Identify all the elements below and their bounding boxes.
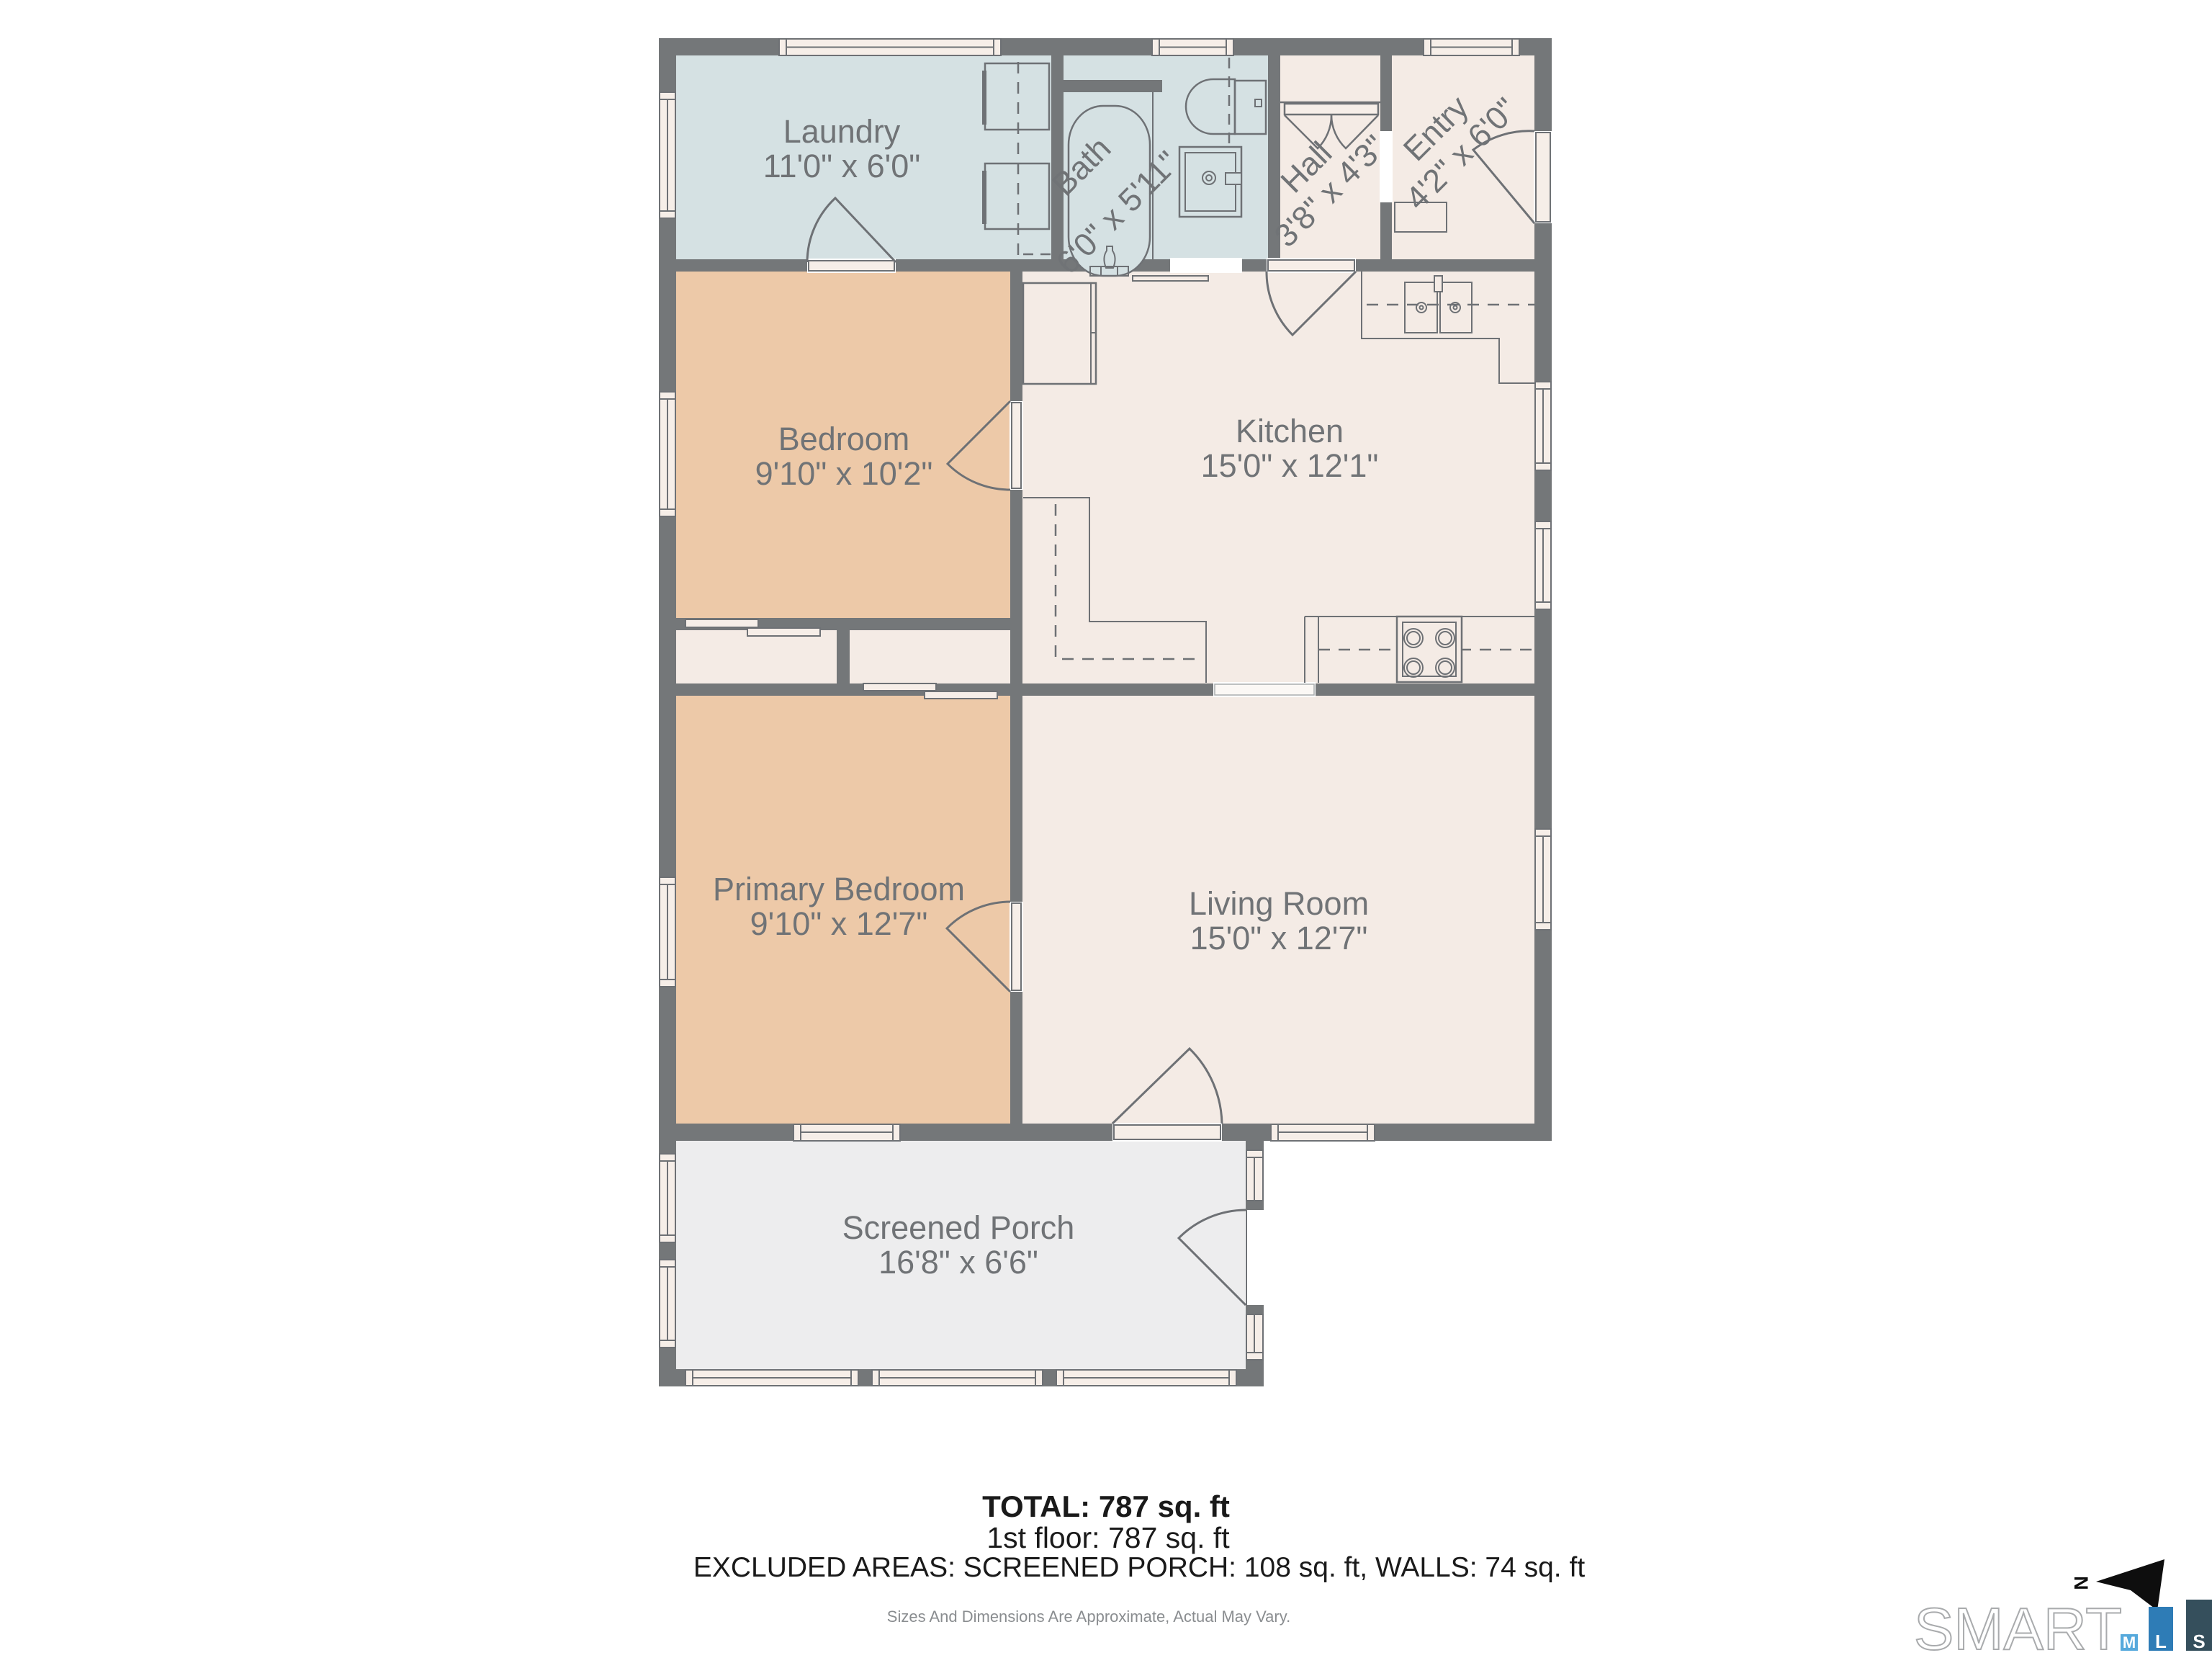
svg-text:Living Room: Living Room	[1189, 885, 1369, 922]
svg-text:1st floor: 787 sq. ft: 1st floor: 787 sq. ft	[986, 1521, 1230, 1554]
svg-text:Laundry: Laundry	[783, 113, 901, 150]
svg-text:M: M	[2123, 1633, 2136, 1651]
svg-text:L: L	[2155, 1631, 2167, 1652]
svg-text:SMART: SMART	[1914, 1595, 2122, 1659]
svg-text:Screened Porch: Screened Porch	[842, 1209, 1075, 1246]
svg-text:15'0" x 12'1": 15'0" x 12'1"	[1201, 447, 1379, 484]
svg-text:Primary Bedroom: Primary Bedroom	[713, 871, 965, 907]
svg-text:Kitchen: Kitchen	[1236, 413, 1344, 449]
svg-text:EXCLUDED AREAS: SCREENED PORCH: EXCLUDED AREAS: SCREENED PORCH: 108 sq. …	[693, 1552, 1585, 1583]
svg-text:16'8" x 6'6": 16'8" x 6'6"	[878, 1244, 1038, 1281]
svg-text:9'10" x 12'7": 9'10" x 12'7"	[750, 905, 928, 942]
svg-text:TOTAL: 787 sq. ft: TOTAL: 787 sq. ft	[982, 1489, 1230, 1523]
svg-text:11'0" x 6'0": 11'0" x 6'0"	[763, 148, 920, 184]
svg-text:S: S	[2193, 1631, 2205, 1652]
svg-text:9'10" x 10'2": 9'10" x 10'2"	[755, 455, 933, 492]
svg-text:Bedroom: Bedroom	[778, 421, 910, 457]
svg-text:N: N	[2070, 1576, 2092, 1590]
svg-text:Sizes And Dimensions Are Appro: Sizes And Dimensions Are Approximate, Ac…	[887, 1608, 1290, 1626]
svg-text:15'0" x 12'7": 15'0" x 12'7"	[1190, 920, 1368, 956]
